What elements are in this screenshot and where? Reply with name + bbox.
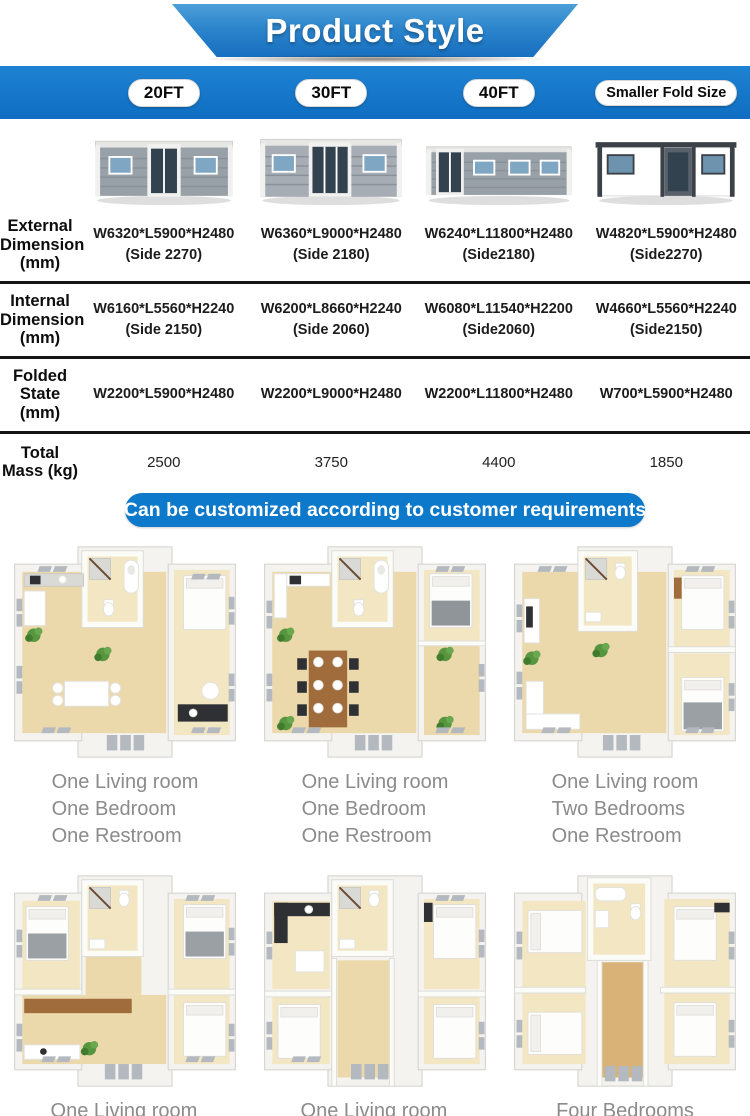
caption-line: One Living room [302,769,449,796]
caption-line: One Restroom [52,823,199,850]
mass-value: 2500 [80,454,248,471]
dim-value: W2200*L11800*H2480 [415,384,583,405]
spec-row-folded: Folded State (mm) W2200*L5900*H2480 W220… [0,359,750,434]
side-value: (Side2150) [583,320,750,341]
product-photo-row [0,119,750,207]
product-photo-40ft [415,119,583,207]
floor-plan-caption-2: One Living room One Bedroom One Restroom [302,769,449,850]
customization-note-banner: Can be customized according to customer … [125,493,645,527]
caption-line: One Bedroom [302,796,449,823]
caption-line: Four Bedrooms [556,1098,694,1116]
dim-value: W2200*L5900*H2480 [80,384,248,405]
tab-smaller-fold-size[interactable]: Smaller Fold Size [595,80,737,106]
floor-plan-image-5 [255,868,495,1094]
header-banner: Product Style [172,4,578,57]
caption-line: One Restroom [552,823,699,850]
floor-plan-caption-1: One Living room One Bedroom One Restroom [52,769,199,850]
tab-20ft[interactable]: 20FT [128,79,200,107]
caption-line: One Living room [552,769,699,796]
caption-line: One Living room [51,1098,200,1116]
spec-row-mass: Total Mass (kg) 2500 3750 4400 1850 [0,434,750,485]
mass-value: 1850 [583,454,750,471]
smaller-fold-container-house-photo [590,119,742,207]
tab-30ft[interactable]: 30FT [295,79,367,107]
floor-plan-image-4 [5,868,245,1094]
product-photo-30ft [248,119,416,207]
dim-value: W6360*L9000*H2480 [261,226,402,242]
dim-value: W6320*L5900*H2480 [93,226,234,242]
floor-plan-image-6 [505,868,745,1094]
dim-value: W4660*L5560*H2240 [596,301,737,317]
tab-40ft[interactable]: 40FT [463,79,535,107]
mass-value: 4400 [415,454,583,471]
spec-table: External Dimension (mm) W6320*L5900*H248… [0,209,750,485]
dim-value: W6200*L8660*H2240 [261,301,402,317]
row-label: Folded State (mm) [0,367,80,423]
row-label: Internal Dimension (mm) [0,292,80,348]
floor-plan-cell-1: One Living room One Bedroom One Restroom [0,539,250,850]
product-photo-20ft [80,119,248,207]
spec-row-internal: Internal Dimension (mm) W6160*L5560*H224… [0,284,750,359]
floor-plan-cell-6: Four Bedrooms One Restroom [500,868,750,1116]
floor-plan-image-1 [5,539,245,765]
floor-plan-caption-5: One Living room Three Bedrooms One Restr… [301,1098,450,1116]
size-tab-bar: 20FT 30FT 40FT Smaller Fold Size [0,66,750,119]
side-value: (Side2060) [415,320,583,341]
dim-value: W6160*L5560*H2240 [93,301,234,317]
floor-plan-cell-5: One Living room Three Bedrooms One Restr… [250,868,500,1116]
dim-value: W6240*L11800*H2480 [425,226,573,242]
row-label: External Dimension (mm) [0,217,80,273]
banner-shadow [205,55,545,63]
dim-value: W4820*L5900*H2480 [596,226,737,242]
caption-line: One Living room [52,769,199,796]
product-style-page: Product Style 20FT 30FT 40FT Smaller Fol… [0,0,750,1116]
caption-line: Two Bedrooms [552,796,699,823]
row-label: Total Mass (kg) [0,444,80,481]
side-value: (Side 2180) [248,245,416,266]
floor-plan-cell-4: One Living room Three Bedrooms One Restr… [0,868,250,1116]
expandable-container-house-30ft-photo [255,119,407,207]
floor-plan-cell-3: One Living room Two Bedrooms One Restroo… [500,539,750,850]
caption-line: One Restroom [302,823,449,850]
caption-line: One Living room [301,1098,450,1116]
expandable-container-house-20ft-photo [88,119,240,207]
floor-plan-grid: One Living room One Bedroom One Restroom [0,539,750,1116]
side-value: (Side2180) [415,245,583,266]
floor-plan-image-3 [505,539,745,765]
dim-value: W6080*L11540*H2200 [425,301,573,317]
mass-value: 3750 [248,454,416,471]
header: Product Style [0,0,750,60]
customization-note-text: Can be customized according to customer … [124,499,646,522]
page-title: Product Style [265,12,484,50]
side-value: (Side 2150) [80,320,248,341]
floor-plan-cell-2: One Living room One Bedroom One Restroom [250,539,500,850]
floor-plan-image-2 [255,539,495,765]
dim-value: W2200*L9000*H2480 [248,384,416,405]
spec-row-external: External Dimension (mm) W6320*L5900*H248… [0,209,750,284]
side-value: (Side 2060) [248,320,416,341]
product-photo-smaller-fold [583,119,750,207]
caption-line: One Bedroom [52,796,199,823]
expandable-container-house-40ft-photo [423,119,575,207]
side-value: (Side2270) [583,245,750,266]
floor-plan-caption-4: One Living room Three Bedrooms One Restr… [51,1098,200,1116]
floor-plan-caption-3: One Living room Two Bedrooms One Restroo… [552,769,699,850]
dim-value: W700*L5900*H2480 [583,384,750,405]
floor-plan-caption-6: Four Bedrooms One Restroom [556,1098,694,1116]
side-value: (Side 2270) [80,245,248,266]
